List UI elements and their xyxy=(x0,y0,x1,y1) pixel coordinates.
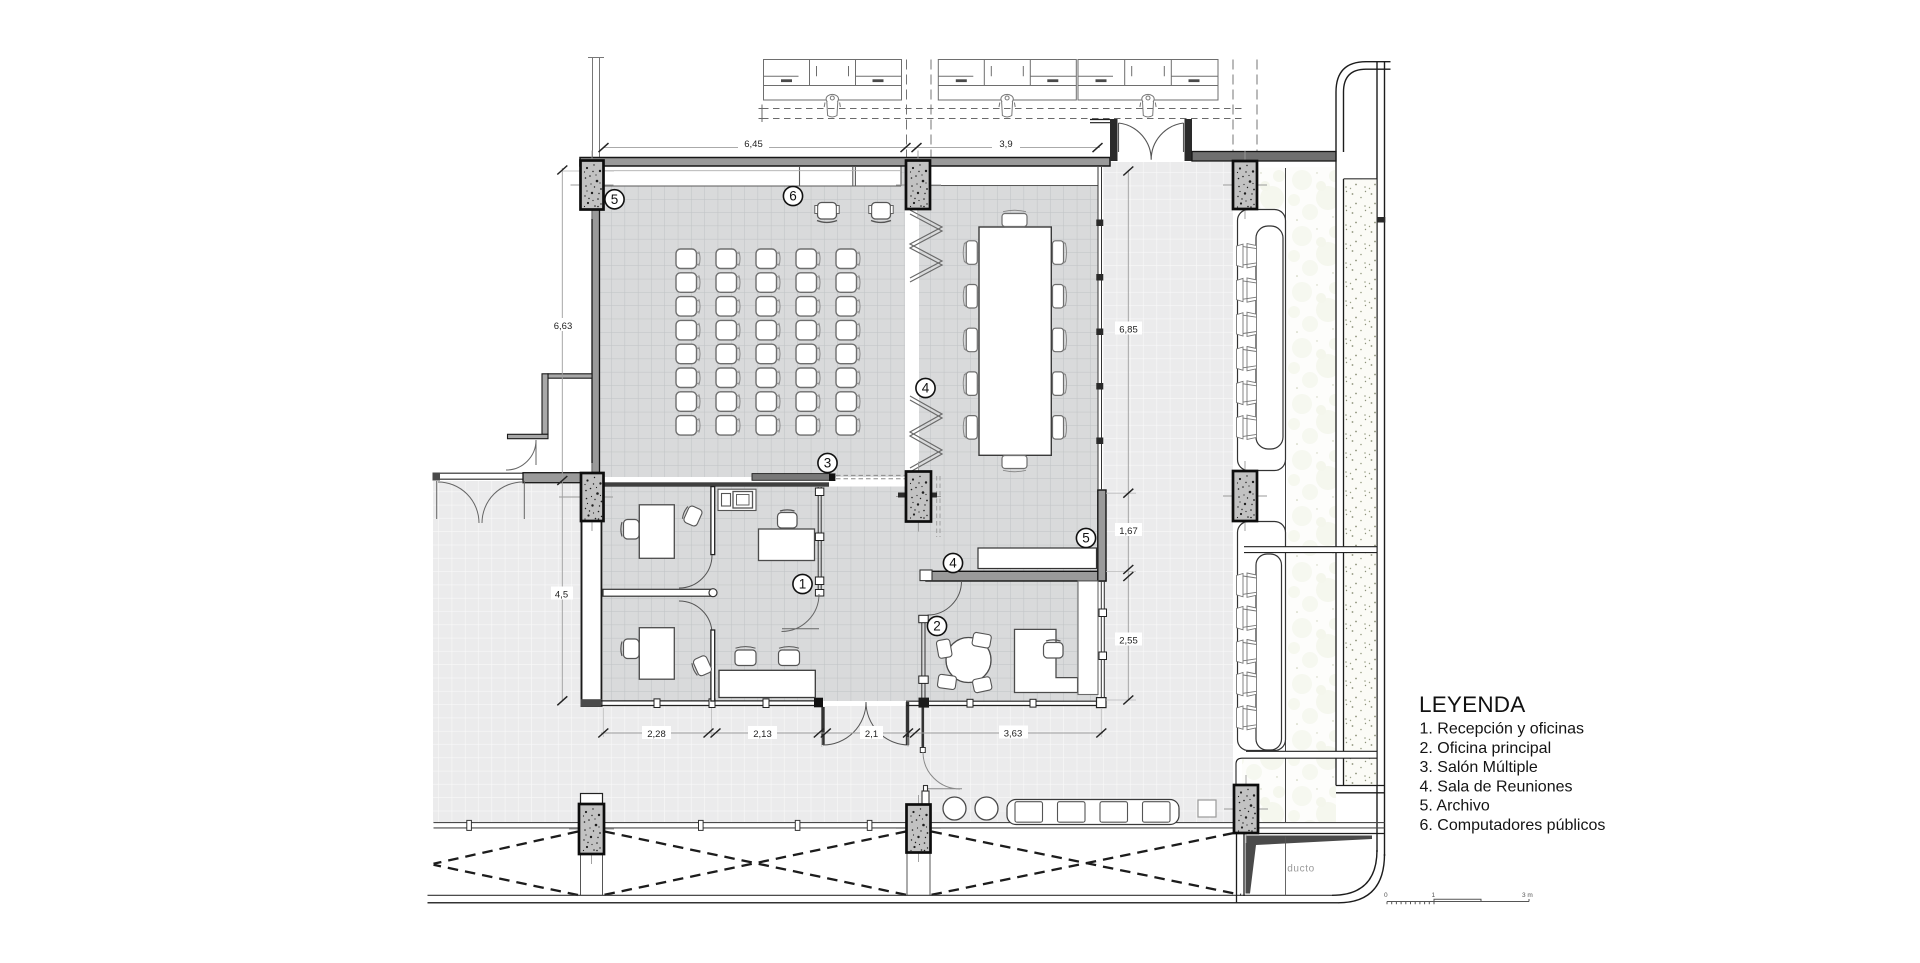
svg-text:6,85: 6,85 xyxy=(1119,325,1138,336)
svg-text:4: 4 xyxy=(949,556,957,571)
svg-text:4. Sala de Reuniones: 4. Sala de Reuniones xyxy=(1420,778,1573,795)
svg-text:3,63: 3,63 xyxy=(1004,729,1023,740)
svg-text:5: 5 xyxy=(1082,531,1090,546)
svg-text:ducto: ducto xyxy=(1287,864,1314,875)
svg-text:2,28: 2,28 xyxy=(647,729,666,740)
svg-text:6,45: 6,45 xyxy=(744,139,763,150)
svg-text:2,13: 2,13 xyxy=(753,729,772,740)
svg-text:3: 3 xyxy=(824,456,832,471)
svg-text:1. Recepción y oficinas: 1. Recepción y oficinas xyxy=(1420,721,1585,738)
svg-text:2. Oficina principal: 2. Oficina principal xyxy=(1420,740,1552,757)
svg-text:LEYENDA: LEYENDA xyxy=(1419,692,1525,717)
svg-text:6. Computadores públicos: 6. Computadores públicos xyxy=(1420,817,1606,834)
svg-text:6,63: 6,63 xyxy=(554,321,573,332)
svg-text:1,67: 1,67 xyxy=(1119,526,1138,537)
svg-text:4,5: 4,5 xyxy=(555,590,568,601)
svg-text:3. Salón Múltiple: 3. Salón Múltiple xyxy=(1420,759,1538,776)
svg-text:5. Archivo: 5. Archivo xyxy=(1420,798,1490,815)
svg-text:6: 6 xyxy=(789,189,797,204)
svg-text:1: 1 xyxy=(1432,892,1436,899)
svg-text:1: 1 xyxy=(799,577,807,592)
svg-text:3,9: 3,9 xyxy=(999,139,1012,150)
svg-text:0: 0 xyxy=(1384,892,1388,899)
svg-text:2,1: 2,1 xyxy=(865,729,878,740)
svg-text:5: 5 xyxy=(611,192,619,207)
svg-text:3 m: 3 m xyxy=(1522,892,1533,899)
svg-text:4: 4 xyxy=(922,381,930,396)
svg-text:2,55: 2,55 xyxy=(1119,636,1138,647)
svg-text:2: 2 xyxy=(933,619,941,634)
